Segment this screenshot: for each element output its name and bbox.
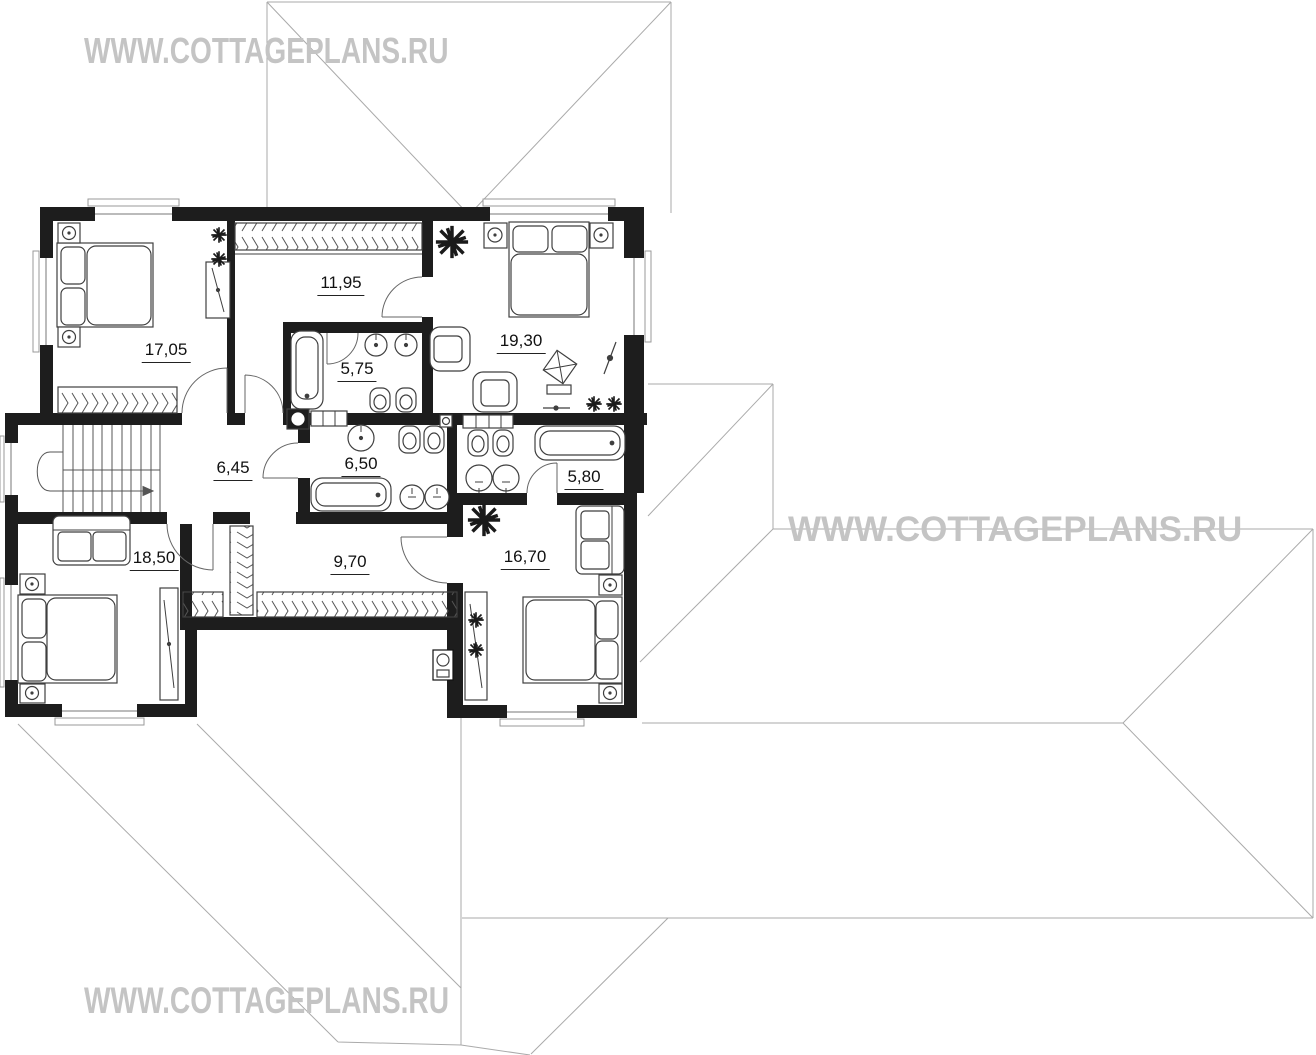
wardrobe-icon (183, 592, 223, 617)
sink-icon (348, 425, 374, 451)
bathtub-icon (535, 426, 625, 460)
nightstand-icon (484, 223, 507, 248)
wardrobe-icon (235, 223, 422, 254)
toilet-icon (468, 430, 488, 456)
watermark-bottom: WWW.COTTAGEPLANS.RU (84, 982, 449, 1019)
floor-lamp-icon (604, 342, 616, 374)
mirror-icon (543, 406, 570, 410)
door-arc (263, 443, 298, 478)
bed-icon (18, 595, 117, 683)
stairs-icon (37, 425, 160, 512)
door-arc (401, 537, 447, 583)
sink-icon (493, 465, 519, 493)
nightstand-icon (599, 684, 622, 703)
nightstand-icon (20, 684, 45, 703)
plant-icon (606, 396, 621, 411)
nightstand-icon (599, 575, 622, 595)
bidet-icon (396, 388, 416, 412)
washing-machine-icon (287, 409, 309, 429)
bed-icon (57, 243, 153, 327)
cabinet-icon (311, 411, 347, 426)
sink-icon (395, 334, 417, 356)
wardrobe-icon (230, 526, 253, 615)
watermark-middle: WWW.COTTAGEPLANS.RU (788, 512, 1242, 547)
plant-icon (468, 612, 483, 627)
sink-icon (425, 485, 449, 509)
nightstand-icon (590, 223, 613, 248)
cabinet-icon (440, 415, 452, 427)
nightstand-icon (20, 574, 45, 594)
toilet-icon (399, 426, 420, 453)
chair-icon (543, 350, 576, 383)
bathtub-icon (291, 331, 323, 409)
cabinet-icon (463, 415, 513, 428)
room-area-label-17-05: 17,05 (142, 341, 191, 363)
watermark-top: WWW.COTTAGEPLANS.RU (84, 33, 448, 69)
door-arc (527, 463, 557, 493)
bathtub-icon (311, 478, 391, 511)
sink-icon (466, 465, 492, 493)
bench-icon (547, 385, 571, 394)
room-area-label-16-70: 16,70 (501, 548, 550, 570)
floor-plan-page: { "watermarks": [ {"id": "top-left", "te… (0, 0, 1316, 1055)
sink-icon (365, 334, 387, 356)
plant-icon (468, 504, 500, 536)
wardrobe-icon (257, 592, 457, 617)
room-area-label-11-95: 11,95 (317, 274, 364, 296)
toilet-icon (493, 430, 513, 456)
dresser-mirror-icon (160, 588, 178, 700)
bed-icon (509, 222, 589, 317)
nightstand-icon (58, 327, 80, 347)
room-area-label-18-50: 18,50 (130, 549, 179, 571)
room-area-label-19-30: 19,30 (497, 332, 546, 354)
wardrobe-icon (58, 387, 177, 413)
bidet-icon (424, 426, 444, 453)
plant-icon (211, 251, 226, 266)
room-area-label-5-80: 5,80 (564, 468, 603, 490)
room-area-label-5-75: 5,75 (337, 360, 376, 382)
sofa-icon (53, 516, 130, 565)
toilet-icon (370, 388, 390, 412)
sofa-icon (576, 506, 624, 574)
nightstand-icon (58, 223, 80, 243)
armchair-icon (430, 327, 470, 371)
door-arc (245, 375, 283, 413)
plant-icon (436, 226, 468, 258)
room-area-label-6-50: 6,50 (341, 455, 380, 477)
room-area-label-9-70: 9,70 (330, 553, 369, 575)
plant-icon (211, 227, 226, 242)
door-arc (182, 368, 227, 413)
floor-plan-canvas: WWW.COTTAGEPLANS.RU WWW.COTTAGEPLANS.RU … (0, 0, 1316, 1055)
armchair-icon (473, 372, 517, 412)
room-area-label-6-45: 6,45 (213, 459, 252, 481)
sink-icon (400, 485, 424, 509)
door-arc (382, 277, 422, 317)
dresser-mirror-icon (206, 262, 230, 318)
boiler-icon (433, 650, 453, 680)
plant-icon (586, 396, 601, 411)
plant-icon (468, 642, 483, 657)
bed-icon (523, 597, 622, 683)
